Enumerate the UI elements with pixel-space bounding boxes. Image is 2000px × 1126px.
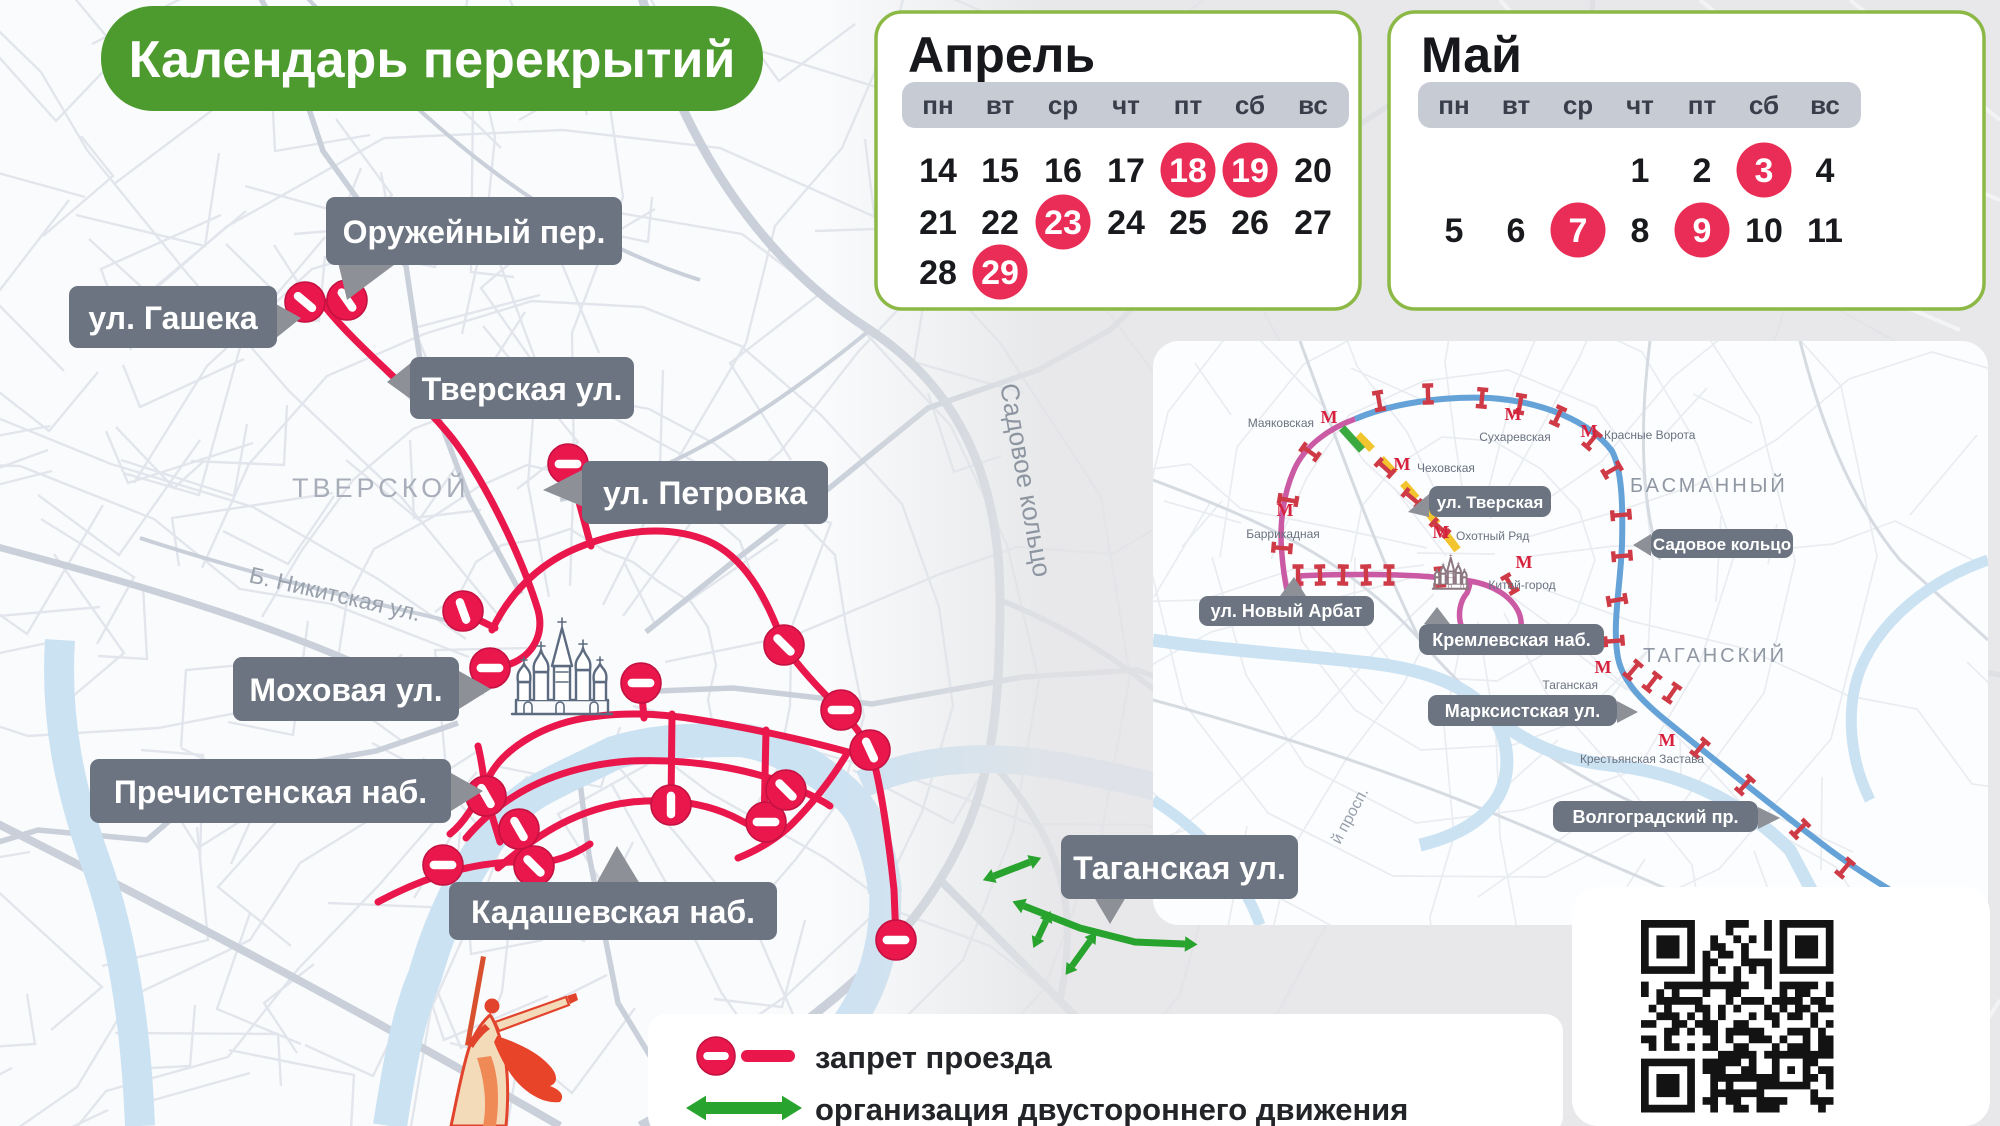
svg-text:27: 27 <box>1294 204 1332 242</box>
svg-text:Волгоградский пр.: Волгоградский пр. <box>1573 807 1739 827</box>
svg-text:20: 20 <box>1294 152 1332 190</box>
svg-text:ул. Гашека: ул. Гашека <box>88 300 257 336</box>
svg-text:26: 26 <box>1231 204 1269 242</box>
svg-text:чт: чт <box>1112 90 1140 120</box>
svg-text:пн: пн <box>922 90 953 120</box>
svg-text:11: 11 <box>1807 212 1843 250</box>
svg-text:Крестьянская Застава: Крестьянская Застава <box>1580 752 1704 766</box>
svg-text:17: 17 <box>1107 152 1145 190</box>
svg-text:23: 23 <box>1044 204 1082 242</box>
svg-text:ср: ср <box>1048 90 1078 120</box>
svg-text:ул. Петровка: ул. Петровка <box>603 475 807 511</box>
svg-text:Моховая ул.: Моховая ул. <box>249 672 442 708</box>
svg-text:М: М <box>1595 657 1612 677</box>
svg-text:М: М <box>1394 454 1411 474</box>
svg-text:24: 24 <box>1107 204 1145 242</box>
svg-text:М: М <box>1433 522 1450 542</box>
svg-text:7: 7 <box>1569 212 1588 250</box>
svg-text:М: М <box>1505 404 1522 424</box>
svg-text:21: 21 <box>919 204 957 242</box>
svg-text:Китай-город: Китай-город <box>1488 578 1555 592</box>
svg-text:Кадашевская наб.: Кадашевская наб. <box>471 894 755 930</box>
svg-text:пт: пт <box>1688 90 1717 120</box>
svg-text:ул. Новый Арбат: ул. Новый Арбат <box>1211 601 1363 621</box>
svg-text:ТВЕРСКОЙ: ТВЕРСКОЙ <box>292 472 470 503</box>
svg-text:4: 4 <box>1816 152 1835 190</box>
svg-text:29: 29 <box>981 254 1019 292</box>
svg-text:10: 10 <box>1745 212 1783 250</box>
svg-text:Сухаревская: Сухаревская <box>1479 430 1550 444</box>
svg-text:пн: пн <box>1438 90 1469 120</box>
svg-text:вс: вс <box>1810 90 1840 120</box>
svg-text:ср: ср <box>1563 90 1593 120</box>
svg-text:Пречистенская наб.: Пречистенская наб. <box>114 774 427 810</box>
svg-text:Красные Ворота: Красные Ворота <box>1604 428 1696 442</box>
svg-text:М: М <box>1581 421 1598 441</box>
svg-text:БАСМАННЫЙ: БАСМАННЫЙ <box>1630 473 1788 497</box>
svg-text:ТАГАНСКИЙ: ТАГАНСКИЙ <box>1643 643 1787 667</box>
svg-text:пт: пт <box>1174 90 1203 120</box>
svg-text:М: М <box>1321 407 1338 427</box>
svg-text:чт: чт <box>1626 90 1654 120</box>
svg-text:Май: Май <box>1421 27 1522 83</box>
svg-text:М: М <box>1659 730 1676 750</box>
svg-text:Таганская ул.: Таганская ул. <box>1073 850 1286 886</box>
svg-text:19: 19 <box>1231 152 1269 190</box>
svg-text:сб: сб <box>1235 90 1265 120</box>
svg-text:Оружейный пер.: Оружейный пер. <box>343 214 606 250</box>
svg-text:22: 22 <box>981 204 1019 242</box>
svg-text:Таганская: Таганская <box>1542 678 1598 692</box>
svg-text:Календарь перекрытий: Календарь перекрытий <box>129 31 736 89</box>
svg-text:Маяковская: Маяковская <box>1248 416 1314 430</box>
svg-text:Тверская ул.: Тверская ул. <box>422 371 623 407</box>
svg-text:2: 2 <box>1693 152 1712 190</box>
svg-text:Охотный Ряд: Охотный Ряд <box>1456 529 1529 543</box>
svg-text:25: 25 <box>1169 204 1207 242</box>
svg-text:сб: сб <box>1749 90 1779 120</box>
svg-text:6: 6 <box>1507 212 1526 250</box>
svg-text:вт: вт <box>1502 90 1531 120</box>
svg-text:18: 18 <box>1169 152 1207 190</box>
svg-text:28: 28 <box>919 254 957 292</box>
svg-text:Марксистская ул.: Марксистская ул. <box>1445 701 1600 721</box>
svg-text:1: 1 <box>1631 152 1650 190</box>
svg-text:3: 3 <box>1755 152 1774 190</box>
svg-text:Кремлевская наб.: Кремлевская наб. <box>1432 630 1590 650</box>
svg-text:организация двустороннего движ: организация двустороннего движения <box>815 1092 1408 1126</box>
svg-text:Апрель: Апрель <box>908 27 1095 83</box>
svg-text:Чеховская: Чеховская <box>1417 461 1475 475</box>
svg-text:5: 5 <box>1445 212 1464 250</box>
svg-text:14: 14 <box>919 152 957 190</box>
svg-text:вт: вт <box>986 90 1015 120</box>
svg-text:запрет проезда: запрет проезда <box>815 1040 1052 1075</box>
svg-text:15: 15 <box>981 152 1019 190</box>
svg-text:М: М <box>1277 500 1294 520</box>
svg-text:9: 9 <box>1693 212 1712 250</box>
svg-text:вс: вс <box>1298 90 1328 120</box>
svg-text:Садовое кольцо: Садовое кольцо <box>1653 535 1791 554</box>
svg-text:16: 16 <box>1044 152 1082 190</box>
svg-text:М: М <box>1516 552 1533 572</box>
svg-text:8: 8 <box>1631 212 1650 250</box>
svg-text:Баррикадная: Баррикадная <box>1246 527 1320 541</box>
svg-text:ул. Тверская: ул. Тверская <box>1437 493 1544 512</box>
